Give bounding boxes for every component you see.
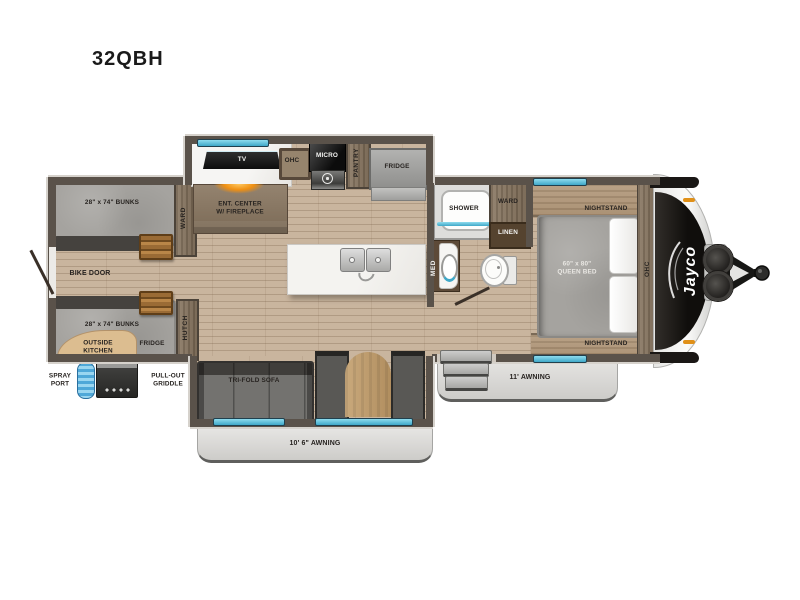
wall-bottom-left	[48, 354, 192, 362]
bunk-ladder-bottom-icon	[139, 291, 173, 315]
hutch-label: HUTCH	[182, 315, 189, 340]
ward-bath-label: WARD	[498, 198, 518, 206]
toilet-seat-icon	[485, 259, 502, 279]
bed-pillow-top-icon	[609, 218, 639, 274]
bunk-ladder-top-icon	[139, 234, 173, 260]
bunk-top-label: 28" x 74" BUNKS	[85, 199, 139, 207]
awning-10-6-label: 10' 6" AWNING	[289, 440, 340, 448]
pull-out-griddle-icon	[96, 361, 138, 398]
spray-port-hose-icon	[77, 362, 95, 399]
micro-label: MICRO	[316, 152, 338, 160]
fridge-label: FRIDGE	[384, 163, 409, 171]
propane-tank-2-icon	[703, 271, 733, 301]
griddle-label: PULL-OUT GRIDDLE	[151, 372, 185, 387]
ohc-bedroom-label: OHC	[644, 261, 651, 277]
marker-light-top-icon	[683, 198, 695, 202]
nightstand-top-label: NIGHTSTAND	[585, 205, 628, 213]
pantry-label: PANTRY	[353, 148, 360, 177]
floorplan-canvas: { "title": "32QBH", "brand": "Jayco", "l…	[0, 0, 800, 600]
ent-center-label: ENT. CENTER W/ FIREPLACE	[216, 200, 264, 215]
ohc-bedroom-label-box: OHC	[637, 183, 658, 356]
hutch-label-box: HUTCH	[176, 299, 195, 357]
bed-pillow-bottom-icon	[609, 276, 639, 333]
shower-water-line	[437, 222, 491, 226]
window-bedroom-bottom	[533, 355, 587, 363]
bunk-bottom-label: 28" x 74" BUNKS	[85, 321, 139, 329]
outside-kitchen-label: OUTSIDE KITCHEN	[83, 339, 112, 354]
bath-wall-right	[526, 183, 533, 247]
trifold-sofa	[197, 361, 314, 422]
ohc-kitchen-label: OHC	[285, 157, 300, 165]
outside-fridge-label: FRIDGE	[139, 340, 164, 348]
ward-bunk-label-box: WARD	[174, 182, 193, 253]
living-slide-wall-left	[190, 356, 197, 427]
window-kitchen-slide	[197, 139, 269, 147]
toilet-flush-icon	[497, 266, 500, 269]
kitchen-slide-wall-left	[185, 136, 192, 185]
window-slide-sofa	[213, 418, 285, 426]
dinette-bench-left	[315, 351, 349, 424]
wall-top-left	[48, 177, 185, 185]
jayco-logo: Jayco	[682, 221, 702, 321]
linen-label: LINEN	[498, 229, 518, 237]
kitchen-slide-wall-right	[426, 136, 433, 185]
bath-wall-left	[427, 183, 434, 307]
bike-door-label: BIKE DOOR	[69, 270, 110, 278]
floorplan-title: 32QBH	[92, 48, 164, 71]
entry-step-1	[440, 350, 492, 364]
ward-bunk-label: WARD	[180, 207, 187, 229]
shower-label: SHOWER	[449, 205, 479, 213]
window-slide-dinette	[315, 418, 413, 426]
queen-bed-label: 60" x 80" QUEEN BED	[557, 260, 596, 275]
sink-drain-right-icon	[375, 257, 381, 263]
nightstand-bottom-label: NIGHTSTAND	[585, 340, 628, 348]
spray-port-label: SPRAY PORT	[49, 372, 71, 387]
awning-11-label: 11' AWNING	[509, 374, 550, 382]
entry-step-3	[445, 376, 488, 391]
lav-sink-icon	[441, 254, 458, 282]
med-label: MED	[430, 260, 437, 276]
fireplace-glow-icon	[211, 184, 267, 197]
window-bedroom-top	[533, 178, 587, 186]
fridge-counter	[371, 187, 426, 201]
living-slide-wall-right	[426, 356, 433, 427]
sink-drain-left-icon	[349, 257, 355, 263]
trifold-sofa-label: TRI-FOLD SOFA	[229, 377, 280, 385]
burner-icon	[322, 173, 333, 184]
marker-light-bottom-icon	[683, 340, 695, 344]
entry-step-2	[443, 363, 489, 377]
griddle-knobs-icon	[104, 388, 130, 392]
med-label-box: MED	[427, 248, 440, 288]
dinette-bench-right	[391, 351, 425, 424]
pantry-label-box: PANTRY	[346, 141, 367, 185]
tv-label: TV	[238, 156, 246, 164]
dinette-table	[345, 352, 391, 417]
